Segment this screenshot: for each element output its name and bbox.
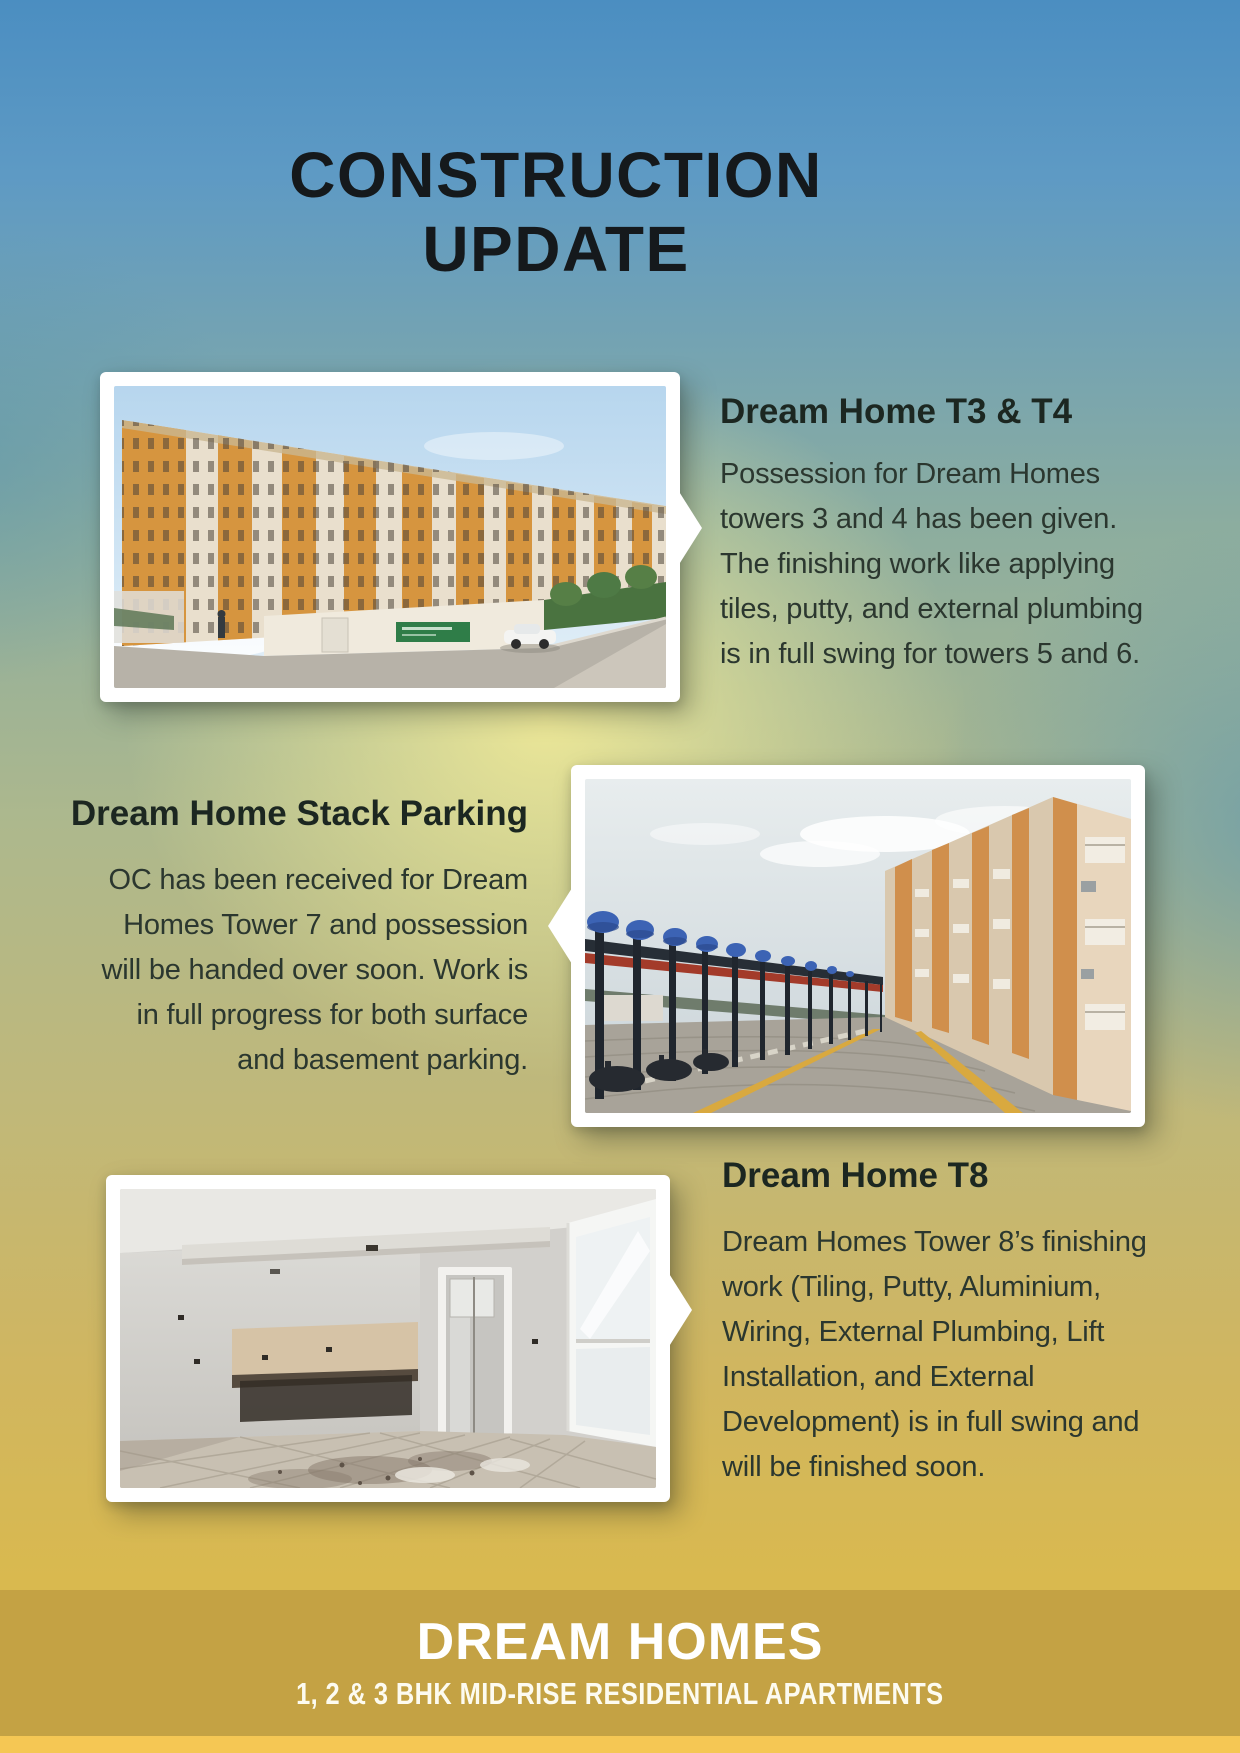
- page-title: CONSTRUCTION UPDATE: [0, 138, 1112, 286]
- body-line: Dream Homes Tower 8’s finishing: [722, 1220, 1147, 1265]
- body-line: Wiring, External Plumbing, Lift: [722, 1310, 1147, 1355]
- unfinished-interior-illustration: [120, 1189, 656, 1488]
- body-line: and basement parking.: [102, 1038, 528, 1083]
- body-line: Possession for Dream Homes: [720, 452, 1143, 497]
- construction-update-poster: CONSTRUCTION UPDATE: [0, 0, 1240, 1753]
- photo-dream-home-t8: [106, 1175, 670, 1502]
- apartment-towers-illustration: [114, 386, 666, 688]
- body-line: Development) is in full swing and: [722, 1400, 1147, 1445]
- footer-bottom-strip: [0, 1736, 1240, 1753]
- body-line: will be finished soon.: [722, 1445, 1147, 1490]
- footer-banner: DREAM HOMES 1, 2 & 3 BHK MID-RISE RESIDE…: [0, 1590, 1240, 1736]
- body-line: tiles, putty, and external plumbing: [720, 587, 1143, 632]
- body-line: in full progress for both surface: [102, 993, 528, 1038]
- photo-dream-home-t3-t4: [100, 372, 680, 702]
- section-heading-t8: Dream Home T8: [722, 1156, 988, 1196]
- photo-dream-home-stack-parking: [571, 765, 1145, 1127]
- body-line: Homes Tower 7 and possession: [102, 903, 528, 948]
- body-line: towers 3 and 4 has been given.: [720, 497, 1143, 542]
- callout-arrow-t3-t4: [678, 490, 702, 566]
- section-heading-t3-t4: Dream Home T3 & T4: [720, 392, 1072, 432]
- body-line: OC has been received for Dream: [102, 858, 528, 903]
- brand-name: DREAM HOMES: [417, 1614, 824, 1670]
- callout-arrow-t8: [668, 1272, 692, 1348]
- title-line-1: CONSTRUCTION: [0, 138, 1112, 212]
- section-heading-stack-parking: Dream Home Stack Parking: [71, 794, 528, 834]
- stack-parking-illustration: [585, 779, 1131, 1113]
- body-line: will be handed over soon. Work is: [102, 948, 528, 993]
- section-body-t3-t4: Possession for Dream Homes towers 3 and …: [720, 452, 1143, 677]
- body-line: is in full swing for towers 5 and 6.: [720, 632, 1143, 677]
- body-line: Installation, and External: [722, 1355, 1147, 1400]
- callout-arrow-stack-parking: [548, 888, 572, 964]
- brand-tagline: 1, 2 & 3 BHK MID-RISE RESIDENTIAL APARTM…: [296, 1675, 943, 1713]
- body-line: The finishing work like applying: [720, 542, 1143, 587]
- section-body-stack-parking: OC has been received for Dream Homes Tow…: [102, 858, 528, 1083]
- section-body-t8: Dream Homes Tower 8’s finishing work (Ti…: [722, 1220, 1147, 1490]
- body-line: work (Tiling, Putty, Aluminium,: [722, 1265, 1147, 1310]
- title-line-2: UPDATE: [0, 212, 1112, 286]
